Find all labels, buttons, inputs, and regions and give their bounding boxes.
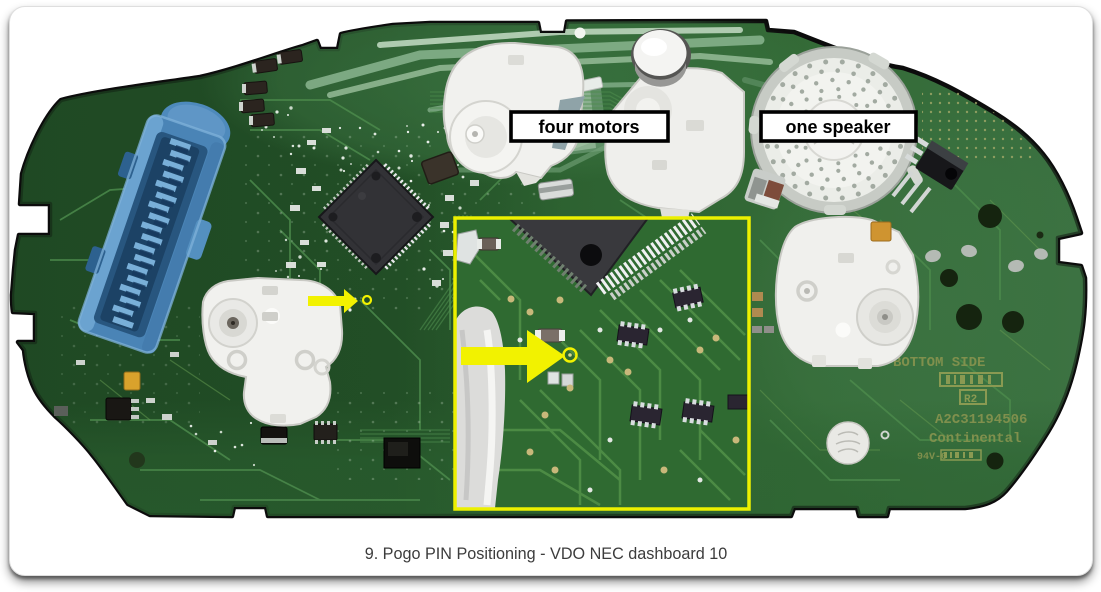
svg-text:A2C31194506: A2C31194506 (935, 412, 1027, 428)
svg-text:R2: R2 (964, 394, 977, 406)
svg-text:one speaker: one speaker (785, 117, 890, 137)
svg-text:Continental: Continental (929, 431, 1021, 447)
svg-text:94V-0: 94V-0 (917, 452, 947, 463)
svg-text:four motors: four motors (539, 117, 640, 137)
svg-text:BOTTOM SIDE: BOTTOM SIDE (893, 355, 985, 371)
